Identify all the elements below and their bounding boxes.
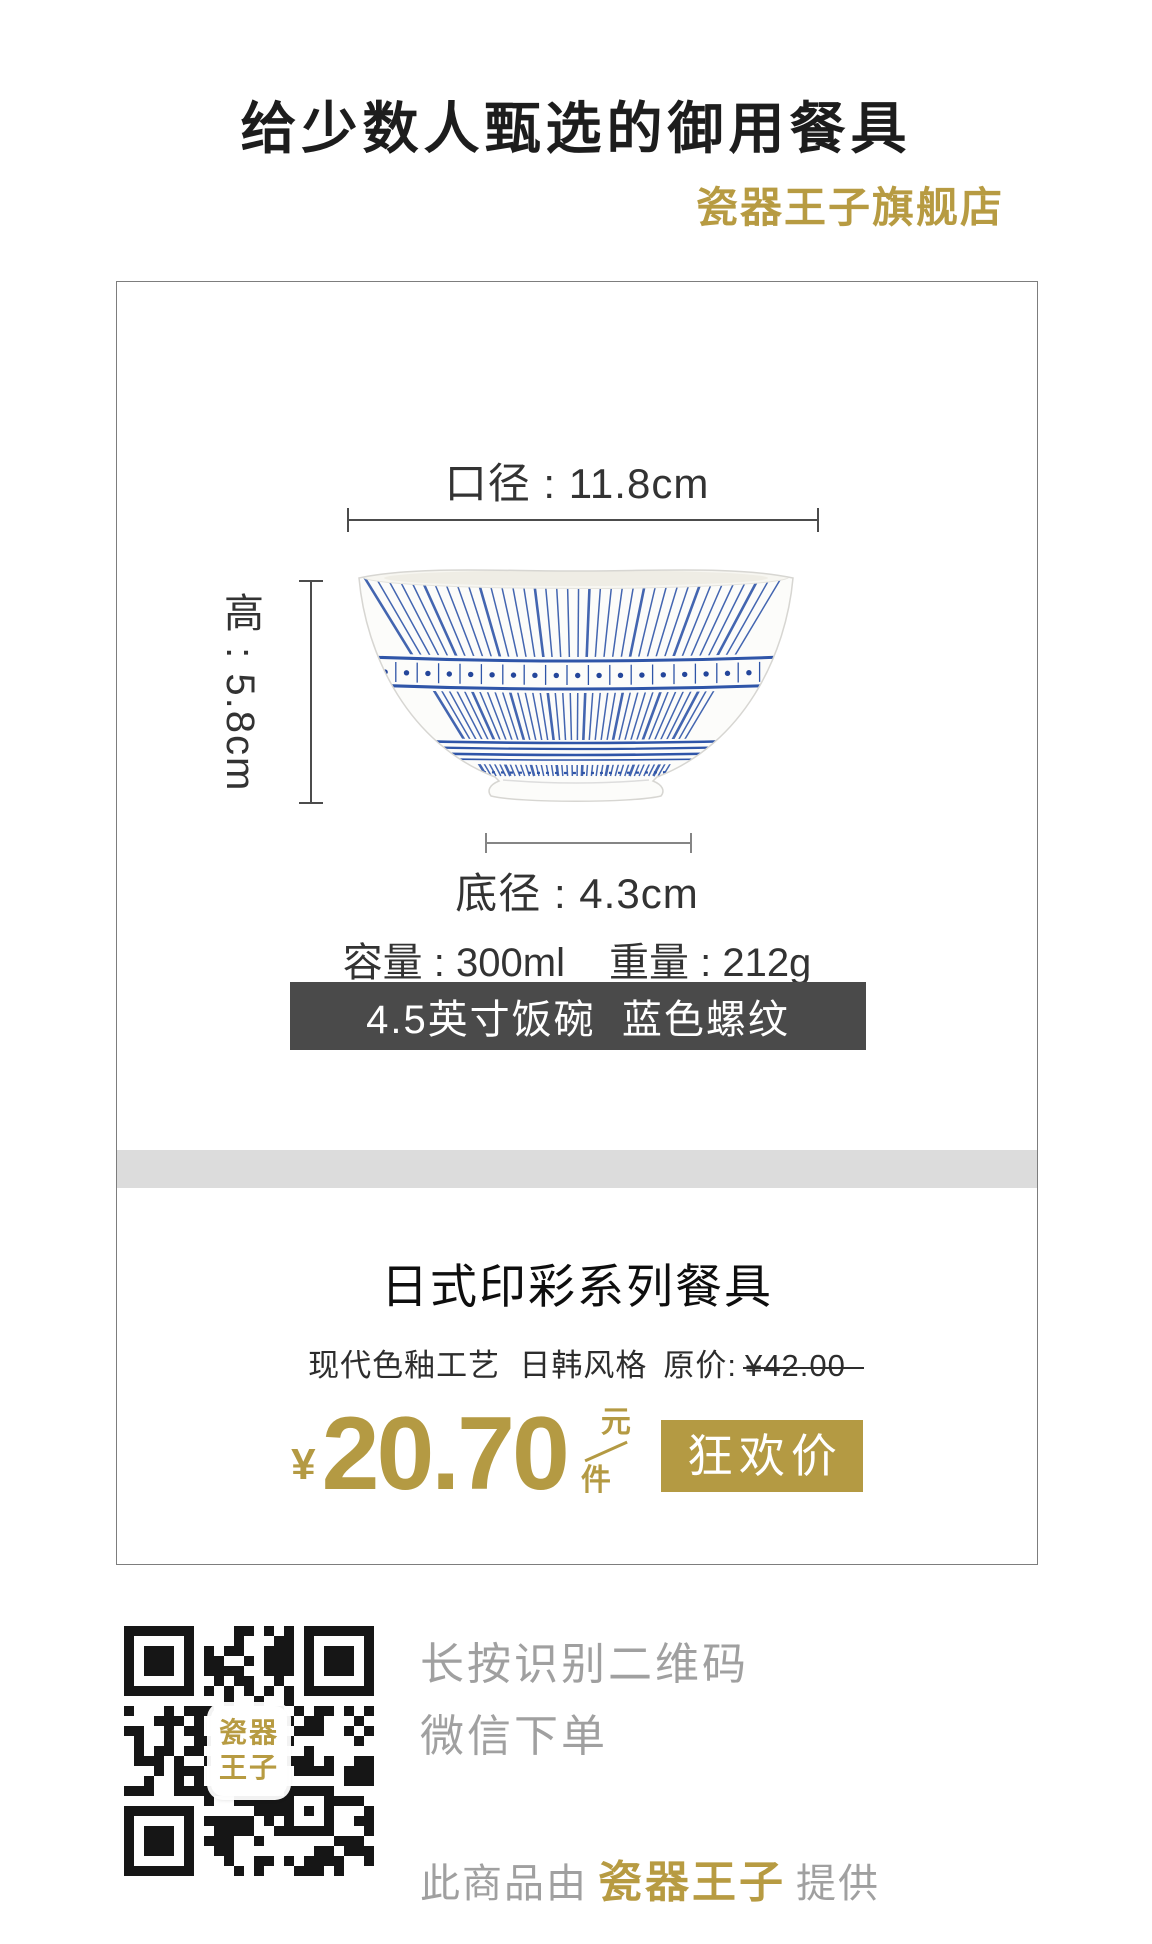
provided-by-text: 此商品由 瓷器王子 提供 [420, 1846, 880, 1910]
section-divider [117, 1150, 1037, 1188]
height-dimension-line [310, 580, 312, 804]
bowl-product-image [345, 554, 807, 806]
product-features: 现代色釉工艺 日韩风格 [308, 1340, 647, 1385]
qr-logo-line1: 瓷器 [219, 1716, 279, 1751]
price-currency-symbol: ¥ [291, 1440, 315, 1490]
price-unit-top: 元 [601, 1408, 631, 1438]
weight-label: 重量 : 212g [609, 930, 811, 988]
qr-logo-line2: 王子 [219, 1751, 279, 1786]
height-dimension-label: 高 : 5.8cm [209, 580, 271, 804]
qr-instruction-primary: 长按识别二维码 [420, 1628, 749, 1692]
promo-page: 给少数人甄选的御用餐具 瓷器王子旗舰店 口径 : 11.8cm 高 : 5.8c… [0, 0, 1152, 1944]
price-value: 20.70 [322, 1411, 567, 1498]
capacity-weight-row: 容量 : 300ml 重量 : 212g [117, 930, 1037, 988]
diameter-dimension-line [347, 519, 819, 521]
product-subtitle: 现代色釉工艺 日韩风格 原价: ¥42.00 [117, 1340, 1037, 1385]
product-card: 口径 : 11.8cm 高 : 5.8cm [116, 281, 1038, 1565]
qr-instruction-secondary: 微信下单 [420, 1700, 608, 1764]
qr-logo: 瓷器 王子 [211, 1706, 287, 1796]
base-dimension-label: 底径 : 4.3cm [117, 860, 1037, 921]
diameter-dimension-label: 口径 : 11.8cm [117, 450, 1037, 511]
shop-name: 瓷器王子旗舰店 [696, 174, 1004, 235]
original-price: ¥42.00 [745, 1348, 846, 1384]
provided-by-prefix: 此商品由 [420, 1851, 588, 1909]
qr-code[interactable]: 瓷器 王子 [120, 1622, 378, 1880]
series-title: 日式印彩系列餐具 [117, 1248, 1037, 1317]
provider-name: 瓷器王子 [598, 1846, 786, 1910]
promo-badge: 狂欢价 [661, 1420, 863, 1492]
price-row: ¥ 20.70 元 件 狂欢价 [117, 1382, 1037, 1502]
original-price-label: 原价: [663, 1340, 737, 1385]
provided-by-suffix: 提供 [796, 1851, 880, 1909]
capacity-label: 容量 : 300ml [343, 930, 565, 988]
price-unit-bottom: 件 [581, 1466, 611, 1496]
price-unit: 元 件 [581, 1408, 631, 1496]
base-dimension-line [485, 842, 692, 844]
page-title: 给少数人甄选的御用餐具 [0, 84, 1152, 165]
price-unit-divider-icon [584, 1441, 627, 1462]
spec-banner: 4.5英寸饭碗 蓝色螺纹 [290, 982, 866, 1050]
